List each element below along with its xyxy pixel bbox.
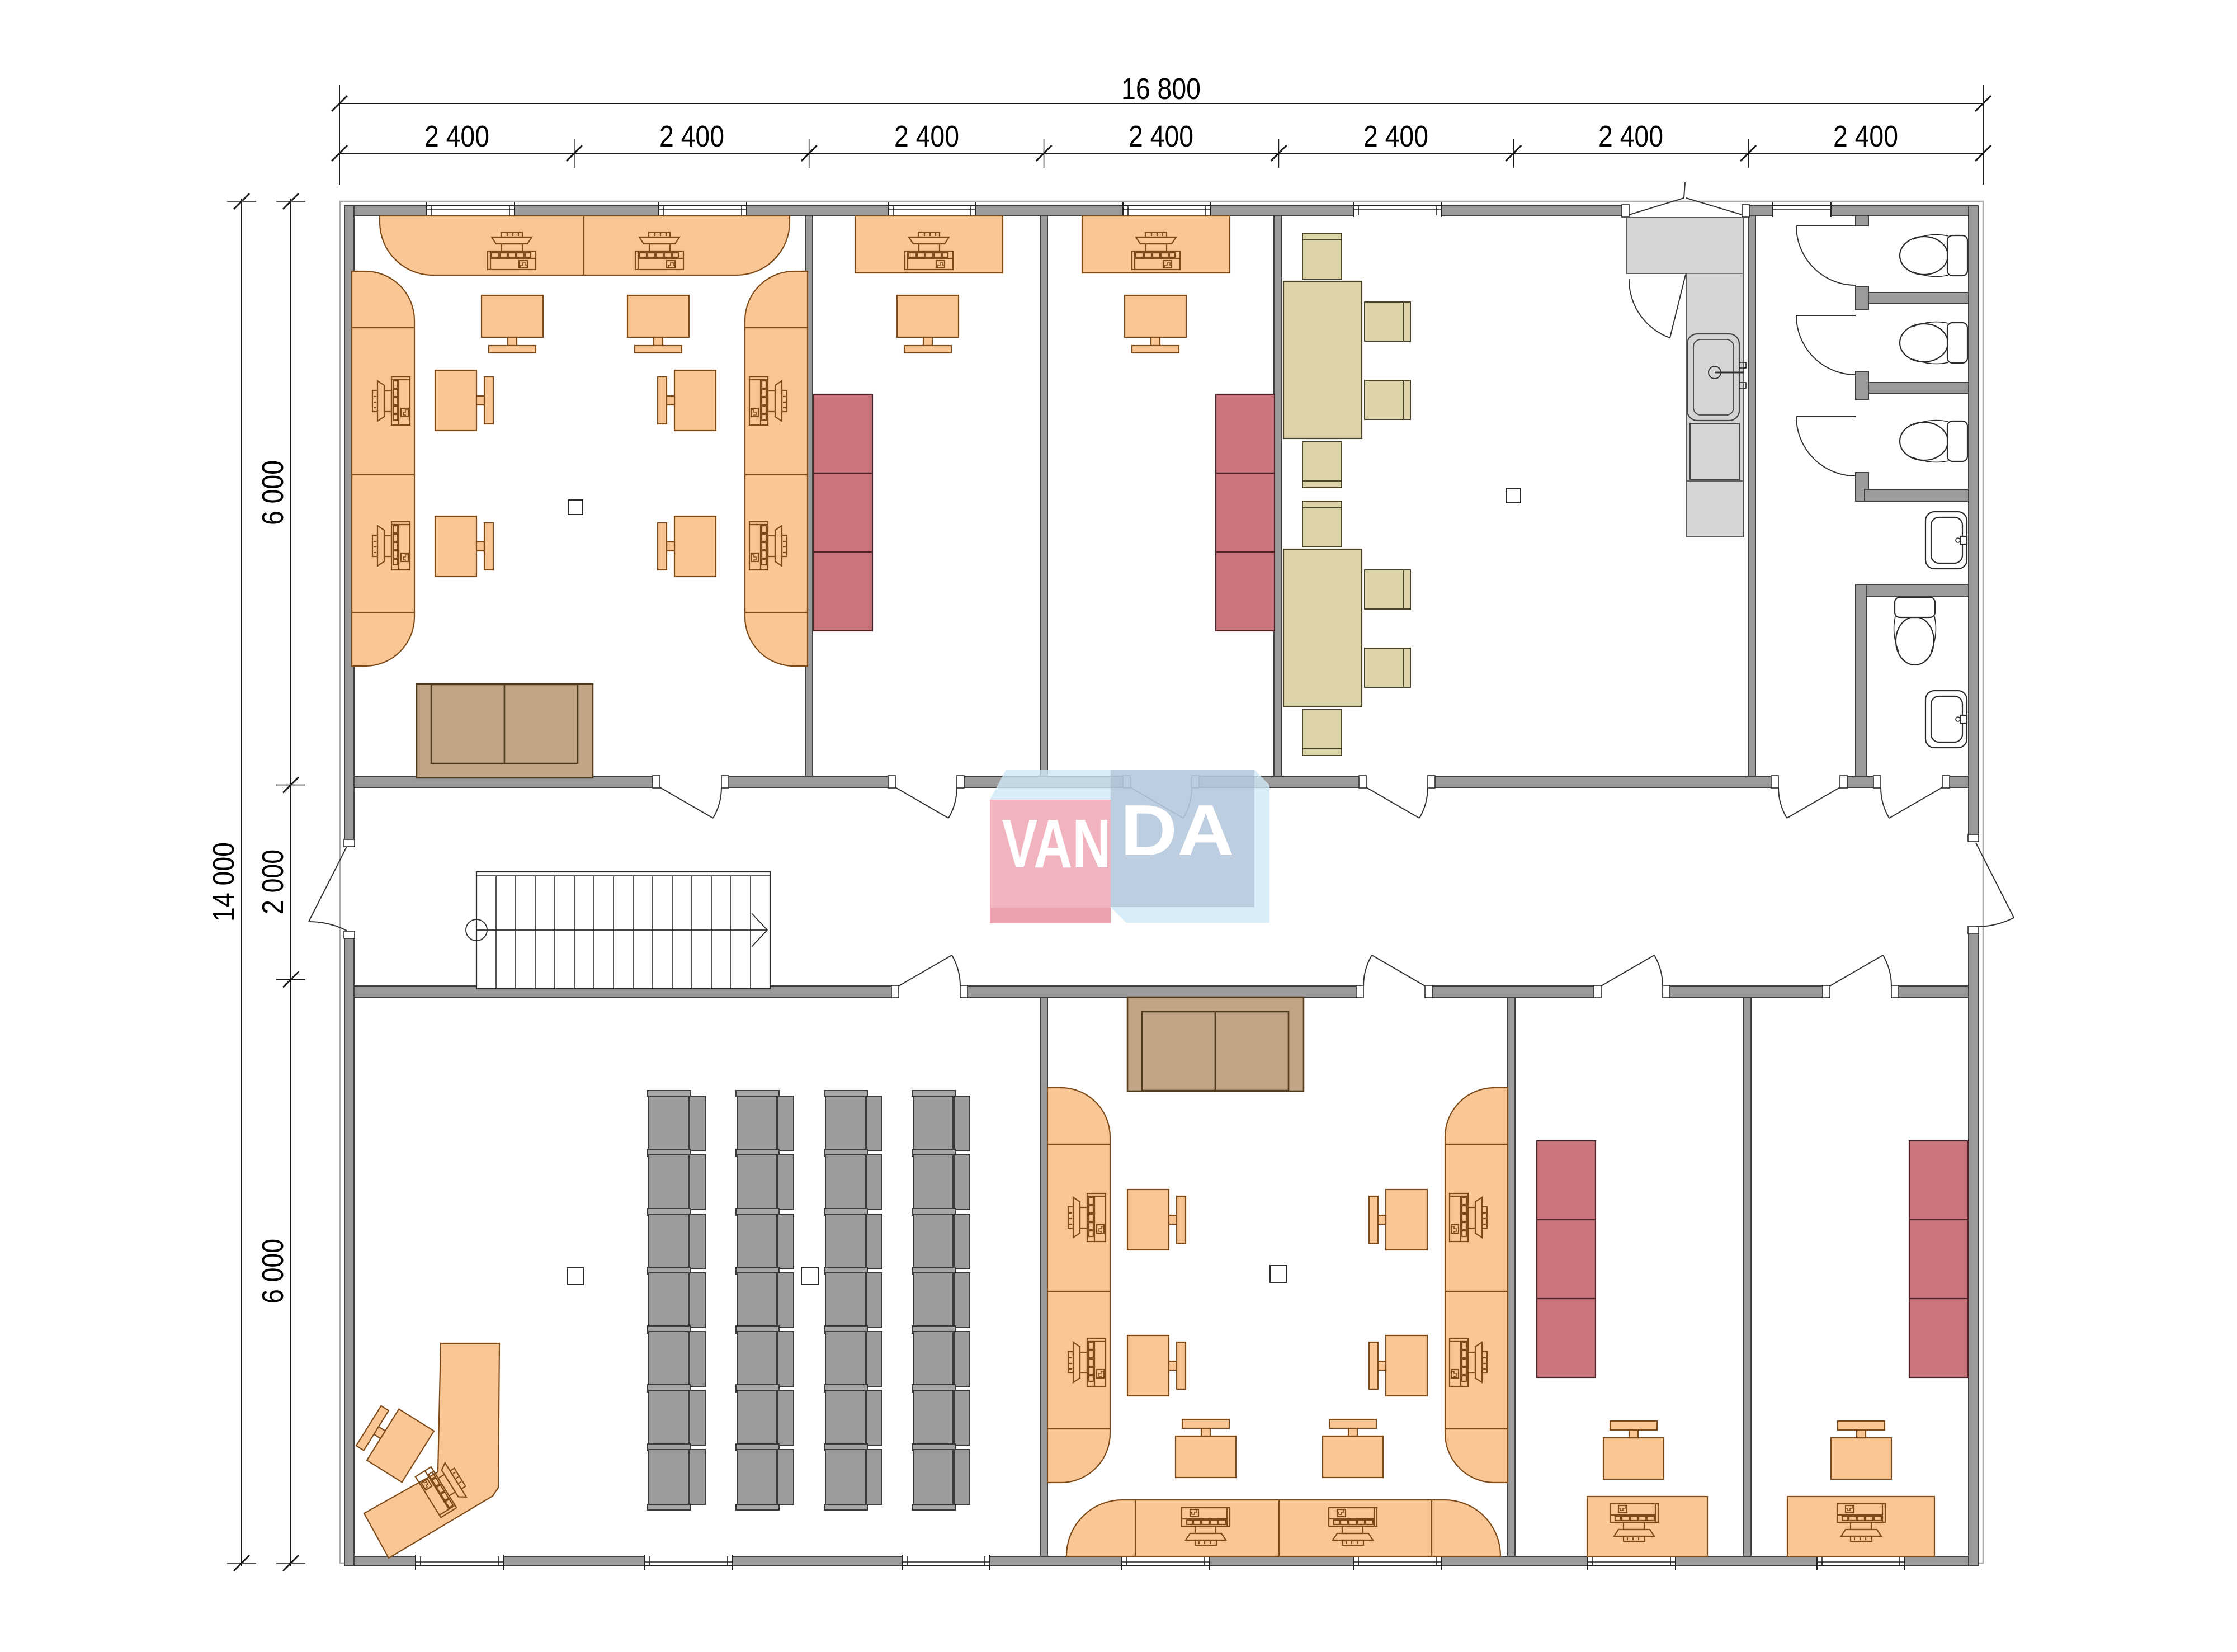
svg-text:2 400: 2 400 xyxy=(894,120,959,153)
svg-text:VAN: VAN xyxy=(1002,806,1111,882)
svg-text:2 400: 2 400 xyxy=(1598,120,1663,153)
svg-text:2 400: 2 400 xyxy=(1833,120,1898,153)
svg-text:6 000: 6 000 xyxy=(256,460,290,525)
svg-text:2 400: 2 400 xyxy=(659,120,724,153)
svg-text:2 400: 2 400 xyxy=(1129,120,1193,153)
svg-text:DA: DA xyxy=(1120,790,1234,871)
svg-text:2 000: 2 000 xyxy=(256,849,290,914)
svg-text:2 400: 2 400 xyxy=(1363,120,1428,153)
svg-text:2 400: 2 400 xyxy=(424,120,489,153)
svg-text:16 800: 16 800 xyxy=(1121,72,1201,106)
svg-text:6 000: 6 000 xyxy=(256,1239,290,1304)
svg-text:14 000: 14 000 xyxy=(207,842,240,922)
